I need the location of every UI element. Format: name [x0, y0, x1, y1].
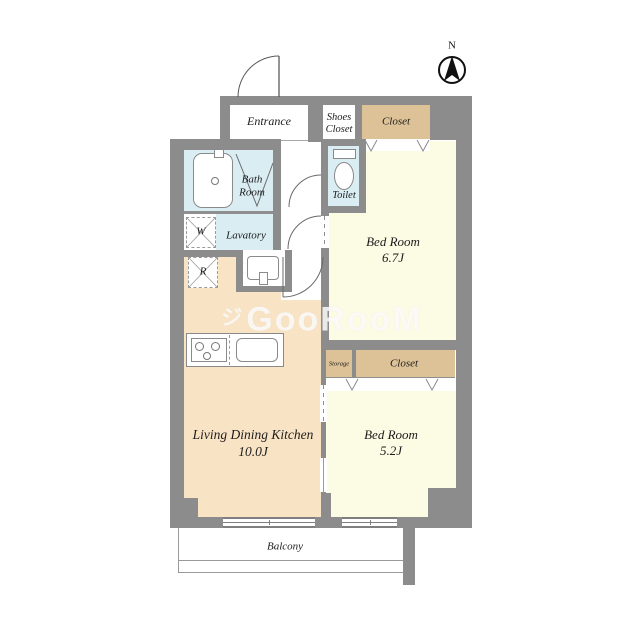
- bedroom-north-label: Bed Room 6.7J: [366, 234, 420, 266]
- wall-divider-bottom-block: [321, 493, 331, 517]
- closet-north-label: Closet: [382, 116, 410, 129]
- ldk-label: Living Dining Kitchen 10.0J: [193, 426, 314, 460]
- closet-north-door-strip: [366, 139, 430, 151]
- bath-faucet: [214, 149, 224, 158]
- bedroom-north-door-gap: [321, 216, 329, 248]
- wall-toilet-right: [359, 139, 366, 213]
- compass-label: N: [448, 40, 456, 53]
- wall-toilet-bottom: [321, 206, 366, 213]
- wall-bath-hall: [273, 141, 281, 250]
- balcony-left-line: [178, 528, 179, 573]
- ldk-divider-dashed-section: [320, 385, 327, 422]
- wall-lavatory-bottom: [184, 250, 238, 257]
- wall-toilet-left: [321, 139, 328, 213]
- ldk-balcony-window: [223, 517, 315, 528]
- wall-alcove-bottom: [236, 286, 292, 292]
- closet-south-door-strip: [326, 378, 455, 391]
- wall-storage-closet: [352, 350, 356, 377]
- toilet-label: Toilet: [332, 190, 356, 202]
- corner-block-top-right: [430, 96, 456, 140]
- toilet-tank: [333, 149, 356, 159]
- stove-burner: [195, 342, 204, 351]
- entrance-label: Entrance: [247, 115, 291, 129]
- kitchen-sink: [236, 338, 278, 362]
- balcony-right-wall: [403, 528, 415, 585]
- bedroom-south-label: Bed Room 5.2J: [364, 427, 418, 459]
- shoes-closet-label: Shoes Closet: [326, 112, 353, 136]
- corner-block-bottom-right: [428, 488, 456, 517]
- closet-south-label: Closet: [390, 358, 418, 371]
- wall-left: [170, 139, 184, 528]
- wall-entrance-shoescloset: [308, 96, 323, 142]
- lavatory-label: Lavatory: [226, 230, 266, 243]
- washbasin-faucet: [259, 272, 268, 285]
- entrance-door-arc: [238, 56, 279, 97]
- balcony-outer-line: [178, 572, 404, 573]
- corner-block-bottom-left: [176, 498, 198, 517]
- bath-drain: [211, 177, 219, 185]
- bath-room-label: Bath Room: [239, 173, 265, 198]
- stove-burner: [203, 352, 211, 360]
- wall-bedroom-north-bottom: [321, 340, 456, 350]
- wall-right: [456, 96, 472, 528]
- counter-divider: [229, 335, 231, 365]
- balcony-label: Balcony: [267, 541, 303, 554]
- washer-label: W: [196, 226, 205, 239]
- wall-bath-lavatory: [184, 211, 273, 214]
- wall-shoescloset-closet: [355, 96, 362, 142]
- compass-circle: [438, 56, 466, 84]
- stove-burner: [211, 342, 220, 351]
- ldk-divider-sliding-opening: [320, 458, 327, 492]
- watermark-text: GooRooM: [246, 301, 422, 339]
- wall-bottom: [170, 517, 472, 528]
- wall-entrance-left: [220, 96, 230, 141]
- refrigerator-label: R: [200, 266, 207, 279]
- balcony-inner-line: [178, 560, 404, 561]
- floor-plan: N Entrance Shoes Closet Closet Bath Room…: [0, 0, 640, 640]
- bedroom-balcony-window: [342, 517, 397, 528]
- watermark-bird-glyph: ジ: [221, 307, 244, 330]
- wall-upper-left: [170, 139, 281, 150]
- storage-label: Storage: [329, 360, 349, 367]
- watermark: ジGooRooM: [221, 301, 422, 340]
